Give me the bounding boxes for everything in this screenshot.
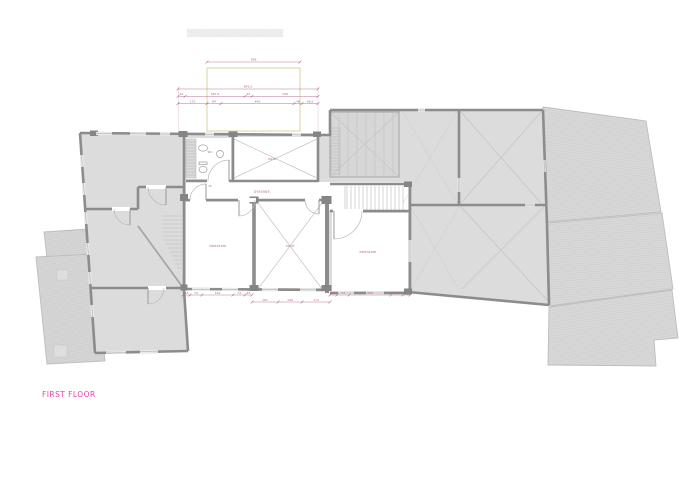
dim-bedr-2: 260: [367, 291, 373, 295]
top-dimensions: 588 843,5 42 361,5 42 398 175 84 440 48 …: [177, 58, 320, 132]
right-roof-top: [543, 107, 661, 222]
dim-row2-0: 175: [190, 99, 196, 103]
right-roofs: [543, 107, 678, 366]
rooflight: [54, 345, 67, 357]
floor-plan-drawing: 588 843,5 42 361,5 42 398 175 84 440 48 …: [0, 0, 700, 495]
dim-row2-3: 48: [296, 99, 300, 103]
dim-row2-2: 440: [255, 99, 261, 103]
wc-ladder: [186, 139, 196, 178]
dim-voidl-0: 161: [262, 298, 268, 302]
label-wc: wc: [207, 150, 212, 154]
basin-icon: [217, 151, 224, 158]
dim-bedr-1: 74: [341, 291, 345, 295]
dim-top-label: 588: [251, 58, 257, 62]
faint-roof-strip: [187, 29, 283, 37]
dim-bedl-4: 43: [247, 291, 251, 295]
dim-voidl-2: 174: [313, 298, 319, 302]
window: [83, 183, 84, 195]
label-bedroom-left: bedroom: [210, 244, 227, 248]
dim-bedl-1: 74: [194, 291, 198, 295]
page-title: FIRST FLOOR: [42, 390, 96, 399]
floor-plan-page: 588 843,5 42 361,5 42 398 175 84 440 48 …: [0, 0, 700, 495]
dim-bedr-4: 43: [405, 291, 409, 295]
dim-row1-3: 398: [282, 92, 288, 96]
window: [90, 272, 91, 284]
label-void-upper: void: [268, 157, 276, 161]
label-passage: passage: [254, 190, 270, 194]
sink-icon: [199, 145, 208, 151]
dim-row1-1: 361,5: [211, 92, 220, 96]
highlight-box: [207, 68, 300, 131]
dim-bedl-0: 43: [185, 291, 189, 295]
dim-bedl-2: 192: [215, 291, 221, 295]
toilet-icon: [199, 166, 207, 172]
label-door-width: 90: [208, 184, 212, 188]
label-bedroom-right: bedroom: [360, 250, 377, 254]
dim-row2-4: 96,5: [307, 99, 314, 103]
window: [82, 155, 83, 167]
dim-voidl-1: 149: [287, 298, 293, 302]
rooflight: [57, 270, 68, 280]
toilet-tank-icon: [199, 162, 207, 165]
dim-row1-2: 42: [247, 92, 251, 96]
dim-bedl-3: 74: [237, 291, 241, 295]
skylight: [330, 112, 399, 177]
window: [92, 305, 93, 317]
dim-row1-0: 42: [180, 92, 184, 96]
dim-row2-1: 84: [212, 99, 216, 103]
label-void-lower: void: [286, 244, 294, 248]
dim-overall-label: 843,5: [244, 85, 253, 89]
window: [88, 243, 89, 255]
window: [85, 212, 86, 224]
dim-bedr-0: 43: [332, 291, 336, 295]
dim-bedr-3: 74: [395, 291, 399, 295]
